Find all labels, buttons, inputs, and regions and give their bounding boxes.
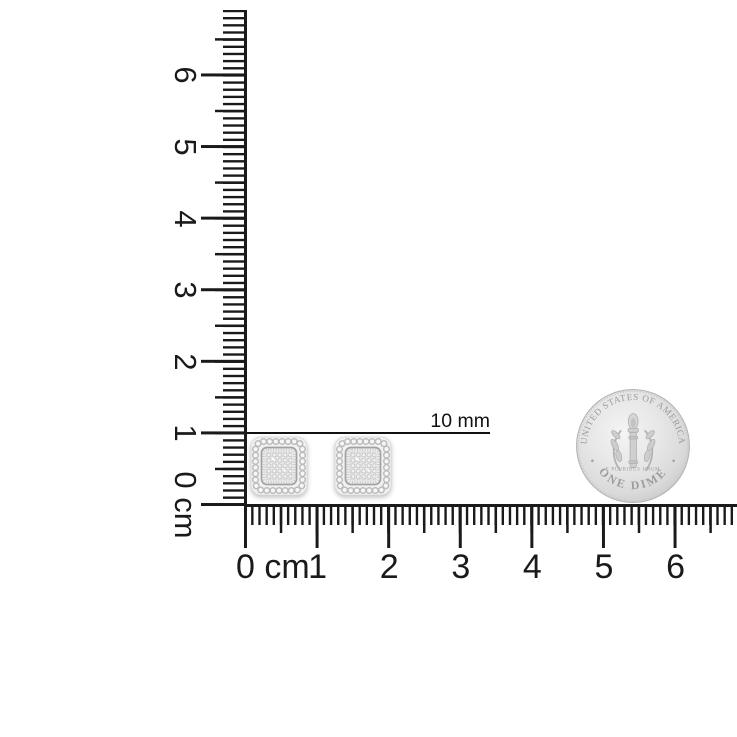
horizontal-ruler-label-5: 5 xyxy=(595,550,614,584)
product-scale-image: UNITED STATES OF AMERICA ONE DIME xyxy=(0,0,737,737)
coin-motto: E PLURIBUS UNUM xyxy=(606,468,660,473)
horizontal-ruler-label-6: 6 xyxy=(666,550,685,584)
horizontal-ruler-label-4: 4 xyxy=(523,550,542,584)
vertical-ruler-label-4: 4 xyxy=(170,210,201,227)
sparkle xyxy=(367,469,369,471)
vertical-ruler-label-2: 2 xyxy=(170,353,201,370)
horizontal-ruler-label-3: 3 xyxy=(451,550,470,584)
vertical-ruler-label-1: 1 xyxy=(170,425,201,442)
vertical-ruler-line xyxy=(244,10,247,507)
coin-dot-right xyxy=(672,459,675,462)
vertical-ruler-ticks xyxy=(201,10,244,506)
earring-right xyxy=(334,436,392,498)
vertical-ruler-label-3: 3 xyxy=(170,282,201,299)
sparkle xyxy=(283,469,285,471)
horizontal-ruler-line xyxy=(244,504,737,507)
vertical-ruler-label-0: 0 cm xyxy=(170,471,201,538)
horizontal-ruler-label-1: 1 xyxy=(308,550,327,584)
sparkle xyxy=(272,458,275,461)
horizontal-ruler-label-2: 2 xyxy=(380,550,399,584)
sparkle xyxy=(356,458,359,461)
coin-dot-left xyxy=(591,459,594,462)
dime-coin: UNITED STATES OF AMERICA ONE DIME xyxy=(575,388,691,504)
horizontal-ruler-ticks xyxy=(244,506,737,548)
measurement-label: 10 mm xyxy=(430,411,490,432)
pave-diamond-cluster xyxy=(350,452,376,480)
vertical-ruler-label-6: 6 xyxy=(170,67,201,84)
vertical-ruler-label-5: 5 xyxy=(170,138,201,155)
earring-left xyxy=(250,436,308,498)
horizontal-ruler-label-0: 0 cm xyxy=(236,550,310,584)
pave-diamond-cluster xyxy=(266,452,292,480)
